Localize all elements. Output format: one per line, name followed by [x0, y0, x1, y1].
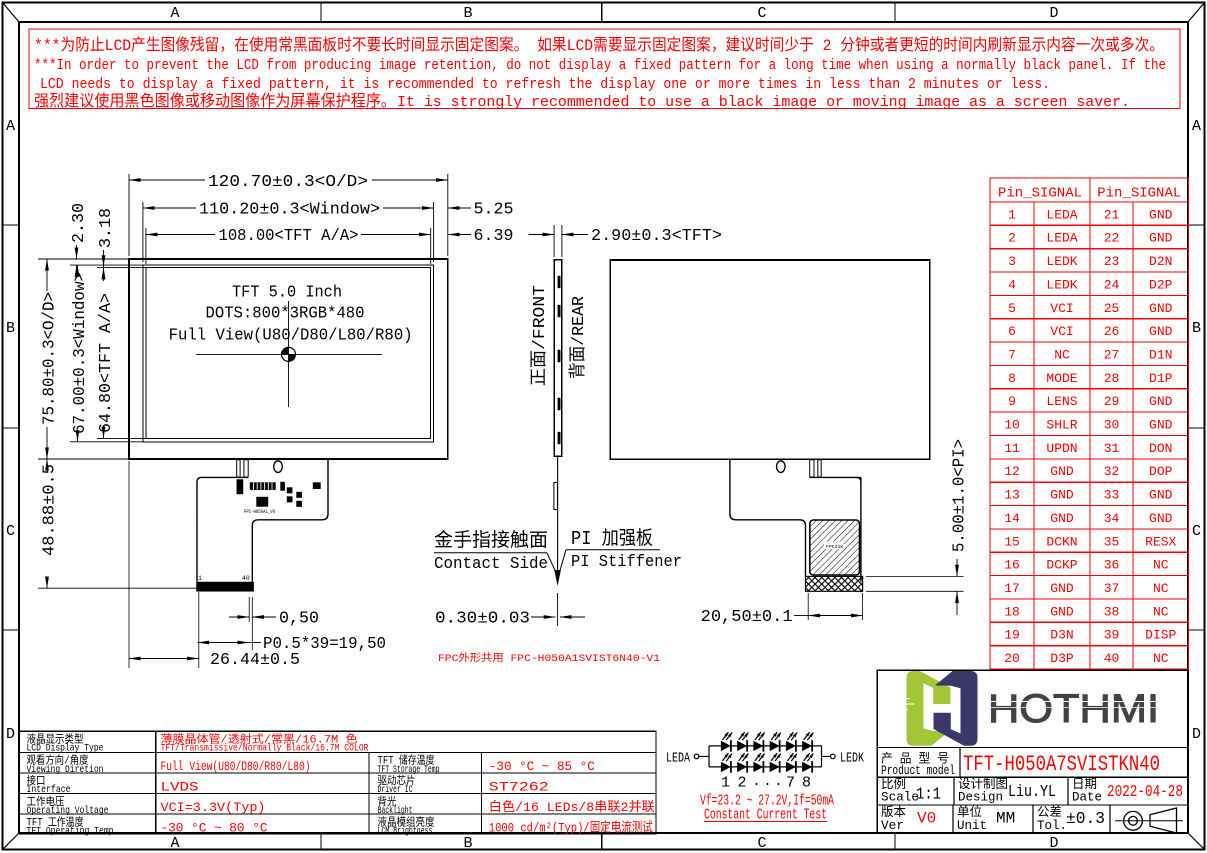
svg-text:C: C — [1192, 523, 1201, 540]
svg-text:LEDK: LEDK — [840, 752, 865, 767]
svg-text:GND: GND — [1050, 604, 1074, 619]
svg-text:GND: GND — [1149, 418, 1173, 433]
svg-text:Pin_SIGNAL: Pin_SIGNAL — [998, 187, 1082, 202]
svg-text:1: 1 — [721, 775, 730, 792]
svg-text:FPC-H050A1_V0: FPC-H050A1_V0 — [244, 509, 275, 515]
svg-text:7: 7 — [1008, 347, 1016, 362]
svg-text:16: 16 — [1004, 558, 1020, 573]
svg-text:14: 14 — [1004, 511, 1020, 526]
svg-text:Liu.YL: Liu.YL — [1008, 782, 1056, 801]
svg-text:DON: DON — [1149, 441, 1172, 456]
svg-text:GND: GND — [1050, 511, 1074, 526]
svg-text:FPC外形共用 FPC-H050A1SVIST6N40-V1: FPC外形共用 FPC-H050A1SVIST6N40-V1 — [438, 652, 660, 665]
svg-text:PI Stiffener: PI Stiffener — [571, 552, 682, 571]
svg-text:4: 4 — [1008, 277, 1016, 292]
svg-text:29: 29 — [1104, 394, 1120, 409]
svg-text:21: 21 — [1104, 207, 1120, 222]
svg-text:-30 °C ~ 85 °C: -30 °C ~ 85 °C — [489, 759, 595, 774]
svg-text:26: 26 — [1104, 324, 1120, 339]
svg-text:0.30±0.03: 0.30±0.03 — [435, 609, 530, 628]
svg-text:32: 32 — [1104, 464, 1120, 479]
svg-text:Date: Date — [1072, 791, 1102, 805]
svg-text:B: B — [463, 835, 472, 852]
svg-text:GND: GND — [1149, 207, 1173, 222]
svg-text:·: · — [763, 777, 771, 793]
svg-text:Full View(U80/D80/R80/L80): Full View(U80/D80/R80/L80) — [161, 759, 311, 774]
svg-text:公差: 公差 — [1037, 805, 1062, 820]
svg-text:48.88±0.5: 48.88±0.5 — [40, 464, 59, 556]
svg-text:VCI: VCI — [1050, 324, 1073, 339]
svg-text:1000 cd/m²(Typ)/固定电流测试: 1000 cd/m²(Typ)/固定电流测试 — [489, 821, 653, 836]
svg-text:D1N: D1N — [1149, 347, 1172, 362]
svg-text:GND: GND — [1050, 488, 1074, 503]
svg-text:LEDA: LEDA — [1046, 231, 1077, 246]
svg-text:35: 35 — [1104, 534, 1120, 549]
svg-text:DCKP: DCKP — [1046, 558, 1077, 573]
svg-text:D: D — [1049, 835, 1058, 852]
svg-text:18: 18 — [1004, 604, 1020, 619]
svg-text:Backlight: Backlight — [378, 805, 413, 817]
svg-text:MODE: MODE — [1046, 371, 1077, 386]
svg-text:MM: MM — [996, 810, 1015, 828]
svg-text:26.44±0.5: 26.44±0.5 — [210, 650, 300, 669]
svg-text:24: 24 — [1104, 277, 1120, 292]
svg-text:Interface: Interface — [27, 784, 71, 796]
svg-text:17: 17 — [1004, 581, 1020, 596]
svg-text:120.70±0.3<O/D>: 120.70±0.3<O/D> — [208, 172, 368, 191]
svg-text:LEDA: LEDA — [666, 752, 691, 767]
svg-text:2: 2 — [737, 775, 746, 792]
svg-text:DOP: DOP — [1149, 464, 1173, 479]
svg-text:LEDA: LEDA — [1046, 207, 1077, 222]
svg-text:30: 30 — [1104, 418, 1120, 433]
svg-text:6: 6 — [1008, 324, 1016, 339]
svg-text:UPDN: UPDN — [1046, 441, 1077, 456]
svg-text:1:1: 1:1 — [916, 785, 941, 804]
svg-text:·: · — [752, 777, 760, 793]
svg-text:D1P: D1P — [1149, 371, 1173, 386]
svg-text:DCKN: DCKN — [1046, 534, 1077, 549]
svg-text:5.25: 5.25 — [474, 200, 514, 219]
svg-text:A: A — [6, 118, 15, 135]
svg-text:27: 27 — [1104, 347, 1120, 362]
svg-text:NC: NC — [1153, 604, 1169, 619]
svg-text:***In order to prevent the LCD: ***In order to prevent the LCD from prod… — [34, 57, 1166, 74]
svg-text:DOTS:800*3RGB*480: DOTS:800*3RGB*480 — [206, 303, 365, 322]
svg-text:B: B — [1192, 320, 1201, 337]
svg-text:39: 39 — [1104, 628, 1120, 643]
svg-text:A: A — [170, 5, 179, 22]
svg-text:ST7262: ST7262 — [489, 779, 549, 794]
svg-text:12: 12 — [1004, 464, 1020, 479]
svg-text:8: 8 — [802, 775, 811, 792]
svg-text:3.18: 3.18 — [96, 208, 115, 248]
svg-text:C: C — [6, 523, 15, 540]
svg-text:40: 40 — [242, 575, 250, 582]
svg-text:Tol.: Tol. — [1037, 819, 1067, 833]
svg-text:75.80±0.3<O/D>: 75.80±0.3<O/D> — [40, 292, 59, 425]
svg-text:5: 5 — [1008, 301, 1016, 316]
svg-text:·: · — [774, 777, 782, 793]
svg-text:33: 33 — [1104, 488, 1120, 503]
svg-text:19: 19 — [1004, 628, 1020, 643]
svg-text:NC: NC — [1153, 581, 1169, 596]
svg-text:9: 9 — [1008, 394, 1016, 409]
svg-text:110.20±0.3<Window>: 110.20±0.3<Window> — [199, 200, 380, 219]
svg-text:108.00<TFT A/A>: 108.00<TFT A/A> — [219, 226, 359, 245]
svg-text:3: 3 — [1008, 254, 1016, 269]
svg-text:D: D — [6, 726, 15, 743]
svg-text:20,50±0.1: 20,50±0.1 — [701, 607, 793, 626]
svg-text:1: 1 — [1008, 207, 1016, 222]
svg-text:GND: GND — [1149, 394, 1173, 409]
svg-text:***为防止LCD产生图像残留，在使用常黑面板时不要长时间显: ***为防止LCD产生图像残留，在使用常黑面板时不要长时间显示固定图案。 如果L… — [34, 36, 1164, 55]
svg-text:GND: GND — [1149, 324, 1173, 339]
svg-text:Scale: Scale — [881, 791, 919, 805]
svg-text:0,50: 0,50 — [279, 609, 319, 628]
svg-text:2.90±0.3<TFT>: 2.90±0.3<TFT> — [591, 226, 722, 245]
svg-text:28: 28 — [1104, 371, 1120, 386]
svg-text:31: 31 — [1104, 441, 1120, 456]
svg-text:A: A — [1192, 118, 1201, 135]
svg-text:SHLR: SHLR — [1046, 418, 1077, 433]
svg-text:25: 25 — [1104, 301, 1120, 316]
svg-text:TFT Storage Temp: TFT Storage Temp — [378, 764, 440, 776]
svg-text:Operating Voltage: Operating Voltage — [27, 805, 109, 817]
svg-text:TFT 5.0 Inch: TFT 5.0 Inch — [232, 283, 342, 302]
svg-text:PI 加强板: PI 加强板 — [571, 527, 653, 550]
svg-text:37: 37 — [1104, 581, 1120, 596]
svg-text:GND: GND — [1050, 464, 1074, 479]
svg-text:C: C — [757, 5, 766, 22]
svg-text:2: 2 — [1008, 231, 1016, 246]
svg-text:TFT/Transmissive/Normally Blac: TFT/Transmissive/Normally Black/16.7M CO… — [161, 743, 370, 755]
svg-text:NC: NC — [1153, 558, 1169, 573]
svg-text:11: 11 — [1004, 441, 1020, 456]
svg-text:Unit: Unit — [957, 819, 987, 833]
svg-text:Full View(U80/D80/L80/R80): Full View(U80/D80/L80/R80) — [169, 325, 413, 344]
svg-text:D2N: D2N — [1149, 254, 1172, 269]
svg-text:2.30: 2.30 — [69, 203, 88, 243]
svg-text:It is strongly recommended to: It is strongly recommended to use a blac… — [397, 94, 1130, 111]
svg-text:LEDK: LEDK — [1046, 277, 1077, 292]
svg-text:67.00±0.3<Window>: 67.00±0.3<Window> — [70, 272, 89, 434]
svg-text:A: A — [170, 835, 179, 852]
svg-text:D2P: D2P — [1149, 277, 1173, 292]
svg-text:NC: NC — [1054, 347, 1070, 362]
svg-text:Viewing Diretion: Viewing Diretion — [27, 764, 104, 776]
svg-text:白色/16 LEDs/8串联2并联: 白色/16 LEDs/8串联2并联 — [489, 799, 655, 815]
svg-text:-30 °C ~ 80 °C: -30 °C ~ 80 °C — [161, 821, 268, 836]
svg-text:VCI=3.3V(Typ): VCI=3.3V(Typ) — [161, 800, 266, 815]
svg-text:金手指接触面: 金手指接触面 — [434, 529, 548, 552]
svg-text:D: D — [1192, 726, 1201, 743]
svg-text:D3N: D3N — [1050, 628, 1073, 643]
svg-text:FPC41K: FPC41K — [826, 544, 843, 550]
svg-text:Ver: Ver — [881, 819, 904, 833]
svg-text:10: 10 — [1004, 418, 1020, 433]
svg-text:22: 22 — [1104, 231, 1120, 246]
svg-text:5.00±1.0<PI>: 5.00±1.0<PI> — [950, 439, 969, 552]
svg-text:LCD Display Type: LCD Display Type — [27, 743, 104, 755]
svg-text:强烈建议使用黑色图像或移动图像作为屏幕保护程序。: 强烈建议使用黑色图像或移动图像作为屏幕保护程序。 — [34, 92, 396, 111]
svg-text:13: 13 — [1004, 488, 1020, 503]
svg-text:LVDS: LVDS — [161, 779, 199, 794]
svg-text:TFT-H050A7SVISTKN40: TFT-H050A7SVISTKN40 — [963, 752, 1160, 777]
svg-text:LENS: LENS — [1046, 394, 1077, 409]
svg-text:DISP: DISP — [1145, 628, 1176, 643]
svg-text:7: 7 — [786, 775, 795, 792]
svg-text:V0: V0 — [917, 810, 936, 828]
svg-text:正面/FRONT: 正面/FRONT — [530, 285, 550, 386]
svg-text:20: 20 — [1004, 651, 1020, 666]
svg-text:Contact Side: Contact Side — [434, 554, 548, 573]
svg-text:D3P: D3P — [1050, 651, 1074, 666]
svg-text:38: 38 — [1104, 604, 1120, 619]
svg-text:B: B — [6, 320, 15, 337]
svg-text:Driver IC: Driver IC — [378, 784, 413, 796]
svg-text:HOTHMI: HOTHMI — [988, 687, 1159, 731]
svg-text:15: 15 — [1004, 534, 1020, 549]
svg-text:背面/REAR: 背面/REAR — [568, 296, 589, 379]
svg-text:LCD needs to display a fixed p: LCD needs to display a fixed pattern, it… — [40, 76, 1050, 93]
svg-text:C: C — [757, 835, 766, 852]
svg-text:1: 1 — [198, 575, 202, 582]
svg-text:B: B — [463, 5, 472, 22]
svg-text:8: 8 — [1008, 371, 1016, 386]
svg-text:LCM Brightness: LCM Brightness — [378, 825, 433, 837]
svg-text:版本: 版本 — [881, 805, 906, 820]
svg-text:GND: GND — [1149, 511, 1173, 526]
svg-text:GND: GND — [1149, 301, 1173, 316]
svg-text:GND: GND — [1149, 231, 1173, 246]
svg-text:Product model: Product model — [881, 764, 955, 778]
svg-text:6.39: 6.39 — [474, 226, 514, 245]
svg-text:64.80<TFT A/A>: 64.80<TFT A/A> — [96, 293, 115, 433]
svg-text:VCI: VCI — [1050, 301, 1073, 316]
svg-text:34: 34 — [1104, 511, 1120, 526]
svg-text:36: 36 — [1104, 558, 1120, 573]
svg-text:TFT Operating Temp: TFT Operating Temp — [27, 825, 114, 837]
svg-text:23: 23 — [1104, 254, 1120, 269]
svg-text:GND: GND — [1149, 488, 1173, 503]
svg-text:±0.3: ±0.3 — [1066, 810, 1105, 829]
svg-text:D: D — [1049, 5, 1058, 22]
svg-text:2022-04-28: 2022-04-28 — [1107, 782, 1183, 801]
svg-text:单位: 单位 — [957, 804, 982, 820]
svg-text:Design: Design — [958, 791, 1003, 805]
svg-text:Pin_SIGNAL: Pin_SIGNAL — [1097, 187, 1181, 202]
svg-text:RESX: RESX — [1145, 534, 1176, 549]
svg-text:GND: GND — [1050, 581, 1074, 596]
svg-text:40: 40 — [1104, 651, 1120, 666]
svg-text:LEDK: LEDK — [1046, 254, 1077, 269]
svg-text:NC: NC — [1153, 651, 1169, 666]
